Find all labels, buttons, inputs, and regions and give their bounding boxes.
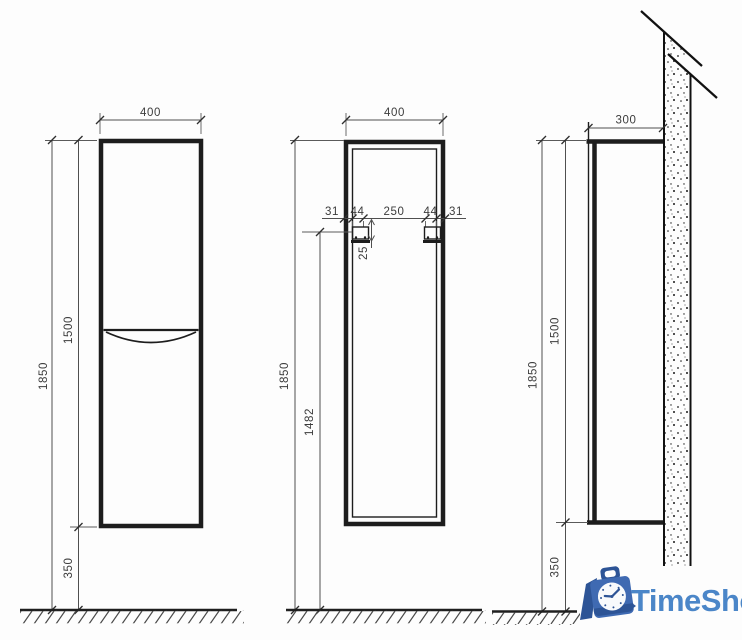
front-view: 400 1850 1500 350 [20,107,244,623]
back-total-height-label: 1850 [279,362,291,390]
side-depth-label: 300 [616,115,637,127]
front-height-label: 1500 [63,316,75,344]
ground-hatch [492,612,580,625]
left-hanger-bracket [351,221,370,242]
bracket-drop-dimension: 25 [358,220,375,261]
side-floor-clearance-label: 350 [550,557,562,578]
front-handle-groove [106,332,196,343]
bracket-drop-label: 25 [358,246,370,260]
back-view: 400 31 44 250 44 31 [279,107,486,623]
back-width-label: 400 [384,107,405,119]
front-total-height-label: 1850 [38,362,50,390]
technical-drawing: 400 1850 1500 350 400 31 [0,0,742,640]
side-total-height-label: 1850 [528,361,540,389]
timeshop-logo: TimeShop [580,565,742,620]
wall-concrete-fill [664,32,691,566]
side-view: 300 1850 1500 350 [492,11,717,625]
front-floor-clearance-label: 350 [63,558,75,579]
mount-spacing-left-bracket-label: 44 [351,206,365,218]
wall-section [641,11,717,566]
side-height-label: 1500 [550,317,562,345]
cabinet-drawing-canvas: 400 1850 1500 350 400 31 [0,0,742,640]
mount-spacing-right-bracket-label: 44 [424,206,438,218]
front-cabinet-outline [101,141,201,526]
ground-hatch [20,611,244,624]
mount-spacing-left-margin-label: 31 [325,206,339,218]
back-cabinet-outline [346,142,443,524]
back-cabinet-inner-outline [353,149,437,517]
right-hanger-bracket [423,221,442,242]
timeshop-logo-text: TimeShop [631,583,742,618]
mount-height-label: 1482 [304,408,316,436]
stopwatch-icon [580,565,636,620]
front-width-label: 400 [140,107,161,119]
mount-spacing-center-label: 250 [384,206,405,218]
ground-hatch [286,611,486,624]
mount-spacing-right-margin-label: 31 [449,206,463,218]
